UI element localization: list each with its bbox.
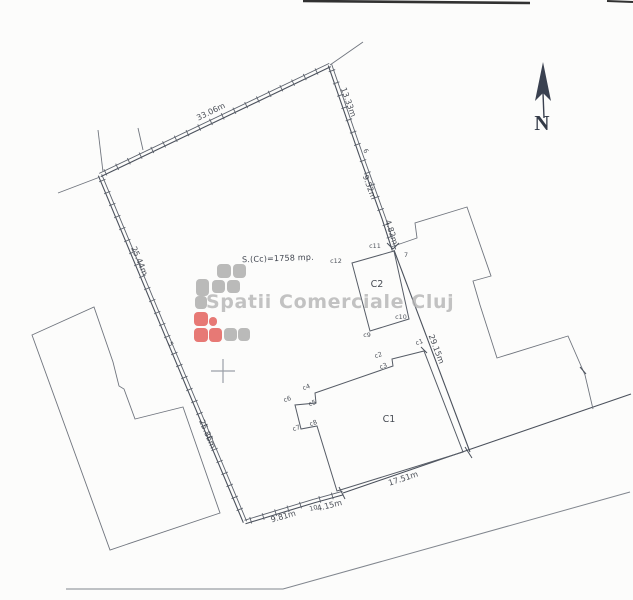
watermark-logo-square bbox=[217, 264, 231, 278]
survey-point-label: c10 bbox=[395, 313, 407, 321]
survey-point-tick bbox=[580, 367, 586, 374]
watermark-logo-square bbox=[233, 264, 246, 278]
boundary-extension-line bbox=[58, 177, 100, 193]
measurement-label: 29.15m bbox=[427, 333, 446, 365]
measurement-label: 9.52m bbox=[361, 174, 378, 201]
neighbor-building-left bbox=[32, 307, 220, 550]
building-label: C2 bbox=[371, 279, 384, 290]
survey-point-label: c1 bbox=[414, 337, 424, 347]
building-c1-outline bbox=[295, 351, 463, 491]
watermark-logo-square bbox=[224, 328, 237, 341]
building-label: C1 bbox=[383, 414, 396, 425]
boundary-extension-line bbox=[98, 130, 103, 172]
watermark-logo-square bbox=[209, 328, 222, 342]
road-edge-line bbox=[66, 492, 630, 589]
survey-point-label: c11 bbox=[369, 242, 381, 250]
measurement-label: 13.33m bbox=[339, 86, 358, 118]
north-label: N bbox=[534, 111, 549, 135]
parcel-boundary-line bbox=[343, 394, 631, 493]
survey-point-label: c9 bbox=[363, 331, 371, 339]
scan-artifact-line bbox=[607, 1, 633, 2]
watermark-logo-square bbox=[194, 312, 208, 326]
survey-point-label: c2 bbox=[373, 350, 383, 360]
watermark-text: Spatii Comerciale Cluj bbox=[206, 291, 454, 313]
scanned-site-plan-page: N33.06m13.33m9.52m4.82m29.15m25.44m25.86… bbox=[0, 0, 633, 600]
watermark-logo-square bbox=[238, 328, 250, 341]
measurement-label: 25.86m bbox=[197, 418, 217, 450]
parcel-boundary-rail bbox=[98, 176, 170, 349]
boundary-extension-line bbox=[330, 42, 363, 65]
parcel-boundary-line bbox=[394, 250, 470, 452]
survey-point-label: c6 bbox=[282, 394, 292, 404]
watermark-logo-square bbox=[209, 317, 217, 326]
measurement-label: 4.82m bbox=[383, 219, 400, 246]
survey-point-label: c12 bbox=[330, 257, 342, 265]
survey-point-label: c3 bbox=[378, 361, 388, 371]
parcel-boundary-rail bbox=[101, 67, 331, 177]
watermark-logo-square bbox=[194, 328, 208, 342]
survey-point-label: 7 bbox=[404, 251, 408, 259]
survey-point-label: c4 bbox=[301, 382, 311, 392]
parcel-boundary-rail bbox=[99, 63, 329, 173]
scan-artifact-line bbox=[303, 1, 530, 3]
measurement-label: 25.44m bbox=[129, 245, 149, 277]
measurement-label: 33.06m bbox=[195, 101, 227, 123]
boundary-extension-line bbox=[138, 128, 143, 150]
